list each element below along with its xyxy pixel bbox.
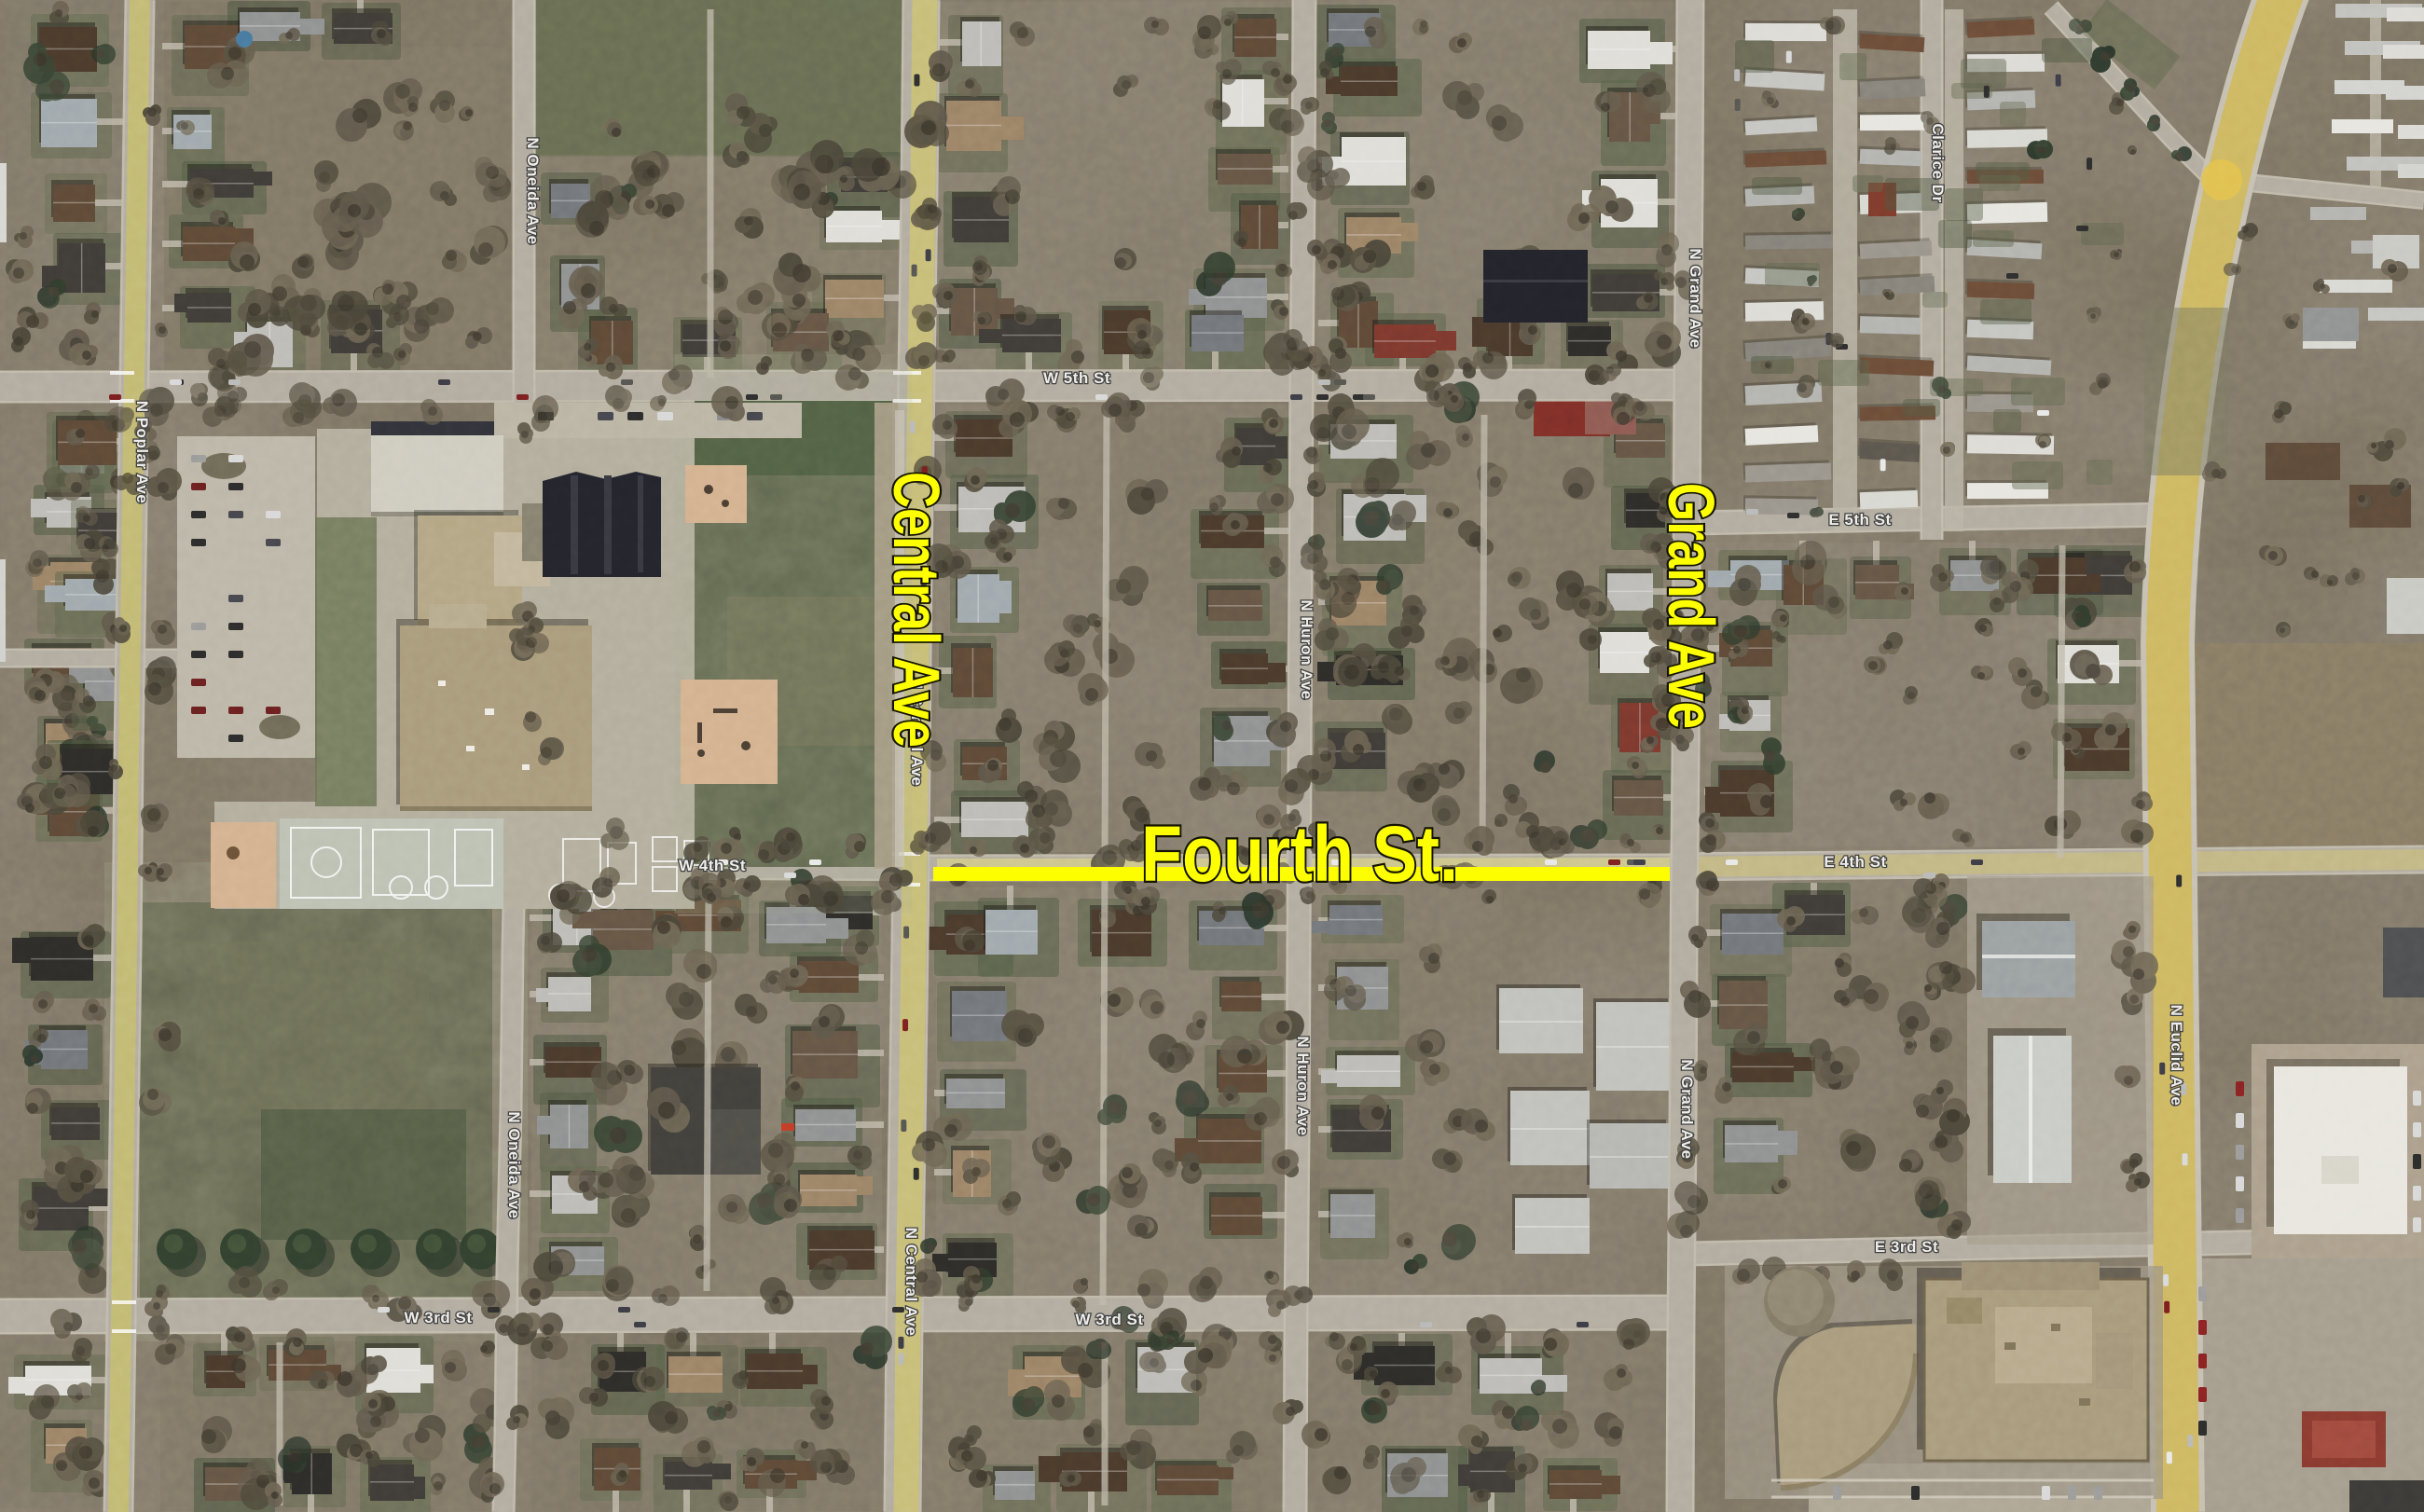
svg-text:E 4th St: E 4th St <box>1824 853 1886 871</box>
svg-text:N Oneida Ave: N Oneida Ave <box>524 137 542 244</box>
svg-text:E 3rd St: E 3rd St <box>1875 1238 1938 1256</box>
svg-text:W 3rd St: W 3rd St <box>405 1309 473 1326</box>
svg-text:W 4th St: W 4th St <box>679 857 746 874</box>
svg-text:Clarice Dr: Clarice Dr <box>1929 123 1947 202</box>
svg-text:N Central Ave: N Central Ave <box>902 1228 920 1337</box>
svg-text:N Euclid Ave: N Euclid Ave <box>2168 1005 2185 1107</box>
svg-text:N Huron Ave: N Huron Ave <box>1298 599 1315 699</box>
svg-text:N Oneida Ave: N Oneida Ave <box>505 1111 523 1218</box>
svg-text:N Huron Ave: N Huron Ave <box>1294 1036 1312 1135</box>
svg-text:N Grand Ave: N Grand Ave <box>1678 1059 1696 1159</box>
svg-text:N Poplar Ave: N Poplar Ave <box>133 401 151 504</box>
svg-text:Fourth St.: Fourth St. <box>1141 810 1458 898</box>
svg-text:E 5th St: E 5th St <box>1828 511 1891 529</box>
svg-text:W 3rd St: W 3rd St <box>1076 1311 1144 1328</box>
svg-text:W 5th St: W 5th St <box>1043 369 1110 387</box>
svg-text:N Grand Ave: N Grand Ave <box>1687 248 1704 348</box>
svg-text:Central Ave: Central Ave <box>880 472 953 748</box>
svg-text:Grand Ave: Grand Ave <box>1655 483 1728 729</box>
